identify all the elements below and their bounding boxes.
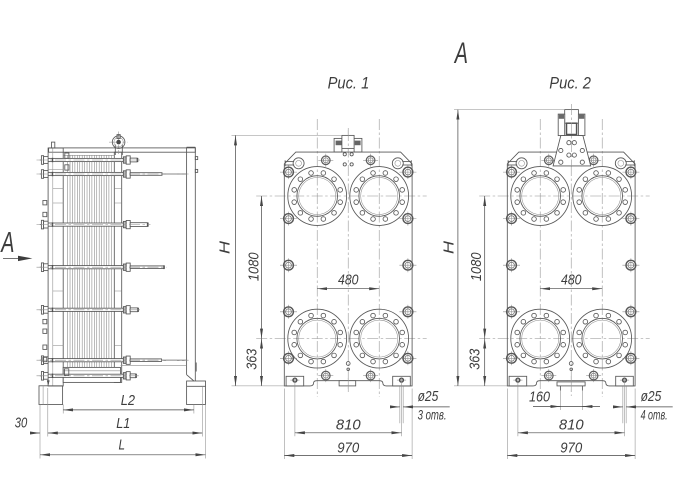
svg-text:363: 363 (244, 348, 261, 370)
svg-text:L2: L2 (121, 392, 136, 409)
svg-text:970: 970 (337, 439, 360, 456)
svg-text:30: 30 (15, 415, 28, 432)
svg-text:1080: 1080 (468, 252, 485, 281)
svg-text:А: А (0, 227, 14, 259)
svg-text:4 отв.: 4 отв. (641, 406, 668, 422)
svg-text:3 отв.: 3 отв. (418, 406, 447, 422)
svg-text:Рис. 2: Рис. 2 (549, 74, 591, 93)
svg-text:ø25: ø25 (418, 388, 439, 405)
svg-text:А: А (453, 37, 468, 70)
svg-text:480: 480 (338, 272, 359, 289)
svg-text:Рис. 1: Рис. 1 (328, 74, 370, 93)
svg-text:160: 160 (529, 389, 551, 406)
svg-text:L1: L1 (116, 415, 130, 432)
svg-text:810: 810 (336, 417, 361, 434)
svg-text:363: 363 (467, 348, 484, 370)
svg-text:1080: 1080 (246, 252, 263, 281)
svg-text:ø25: ø25 (641, 388, 662, 405)
svg-text:480: 480 (561, 272, 582, 289)
svg-text:Н: Н (441, 241, 458, 254)
svg-text:Н: Н (217, 241, 234, 254)
svg-text:L: L (119, 436, 126, 453)
svg-text:810: 810 (559, 417, 584, 434)
svg-text:970: 970 (560, 439, 583, 456)
